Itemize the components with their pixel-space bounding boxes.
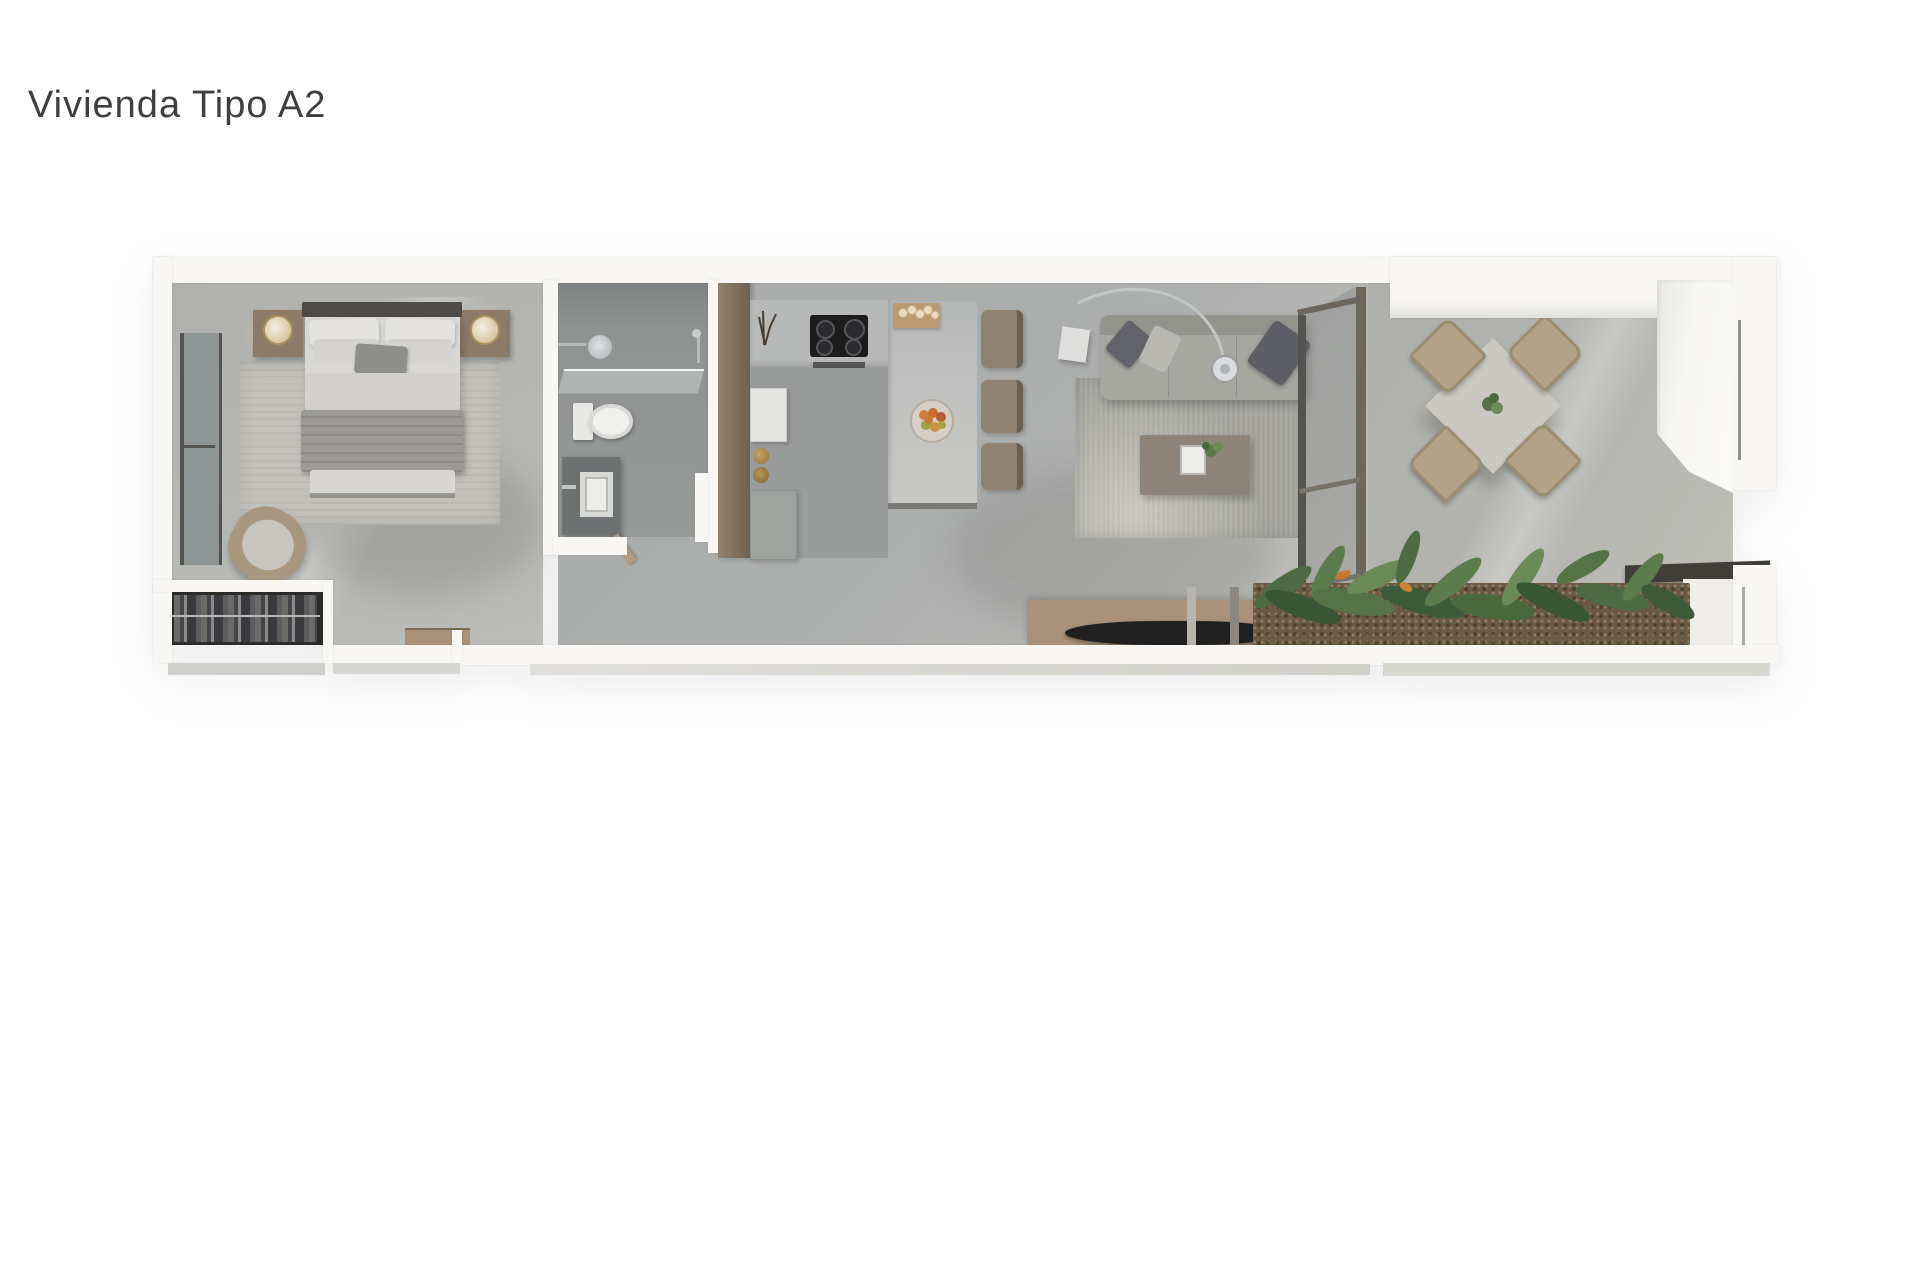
bread-icon xyxy=(899,306,940,320)
floorplan xyxy=(153,257,1780,680)
branch-decor-icon xyxy=(759,311,776,345)
coffee-table-plant-icon xyxy=(1202,442,1223,457)
dining-plant-icon xyxy=(1482,393,1503,414)
floorplan-page: Vivienda Tipo A2 xyxy=(0,0,1920,1280)
arc-lamp-icon xyxy=(1078,289,1238,382)
decor-overlay xyxy=(153,257,1780,680)
page-title: Vivienda Tipo A2 xyxy=(28,84,326,127)
tropical-plants-icon xyxy=(1249,528,1699,631)
fruit-bowl-icon xyxy=(911,400,953,442)
